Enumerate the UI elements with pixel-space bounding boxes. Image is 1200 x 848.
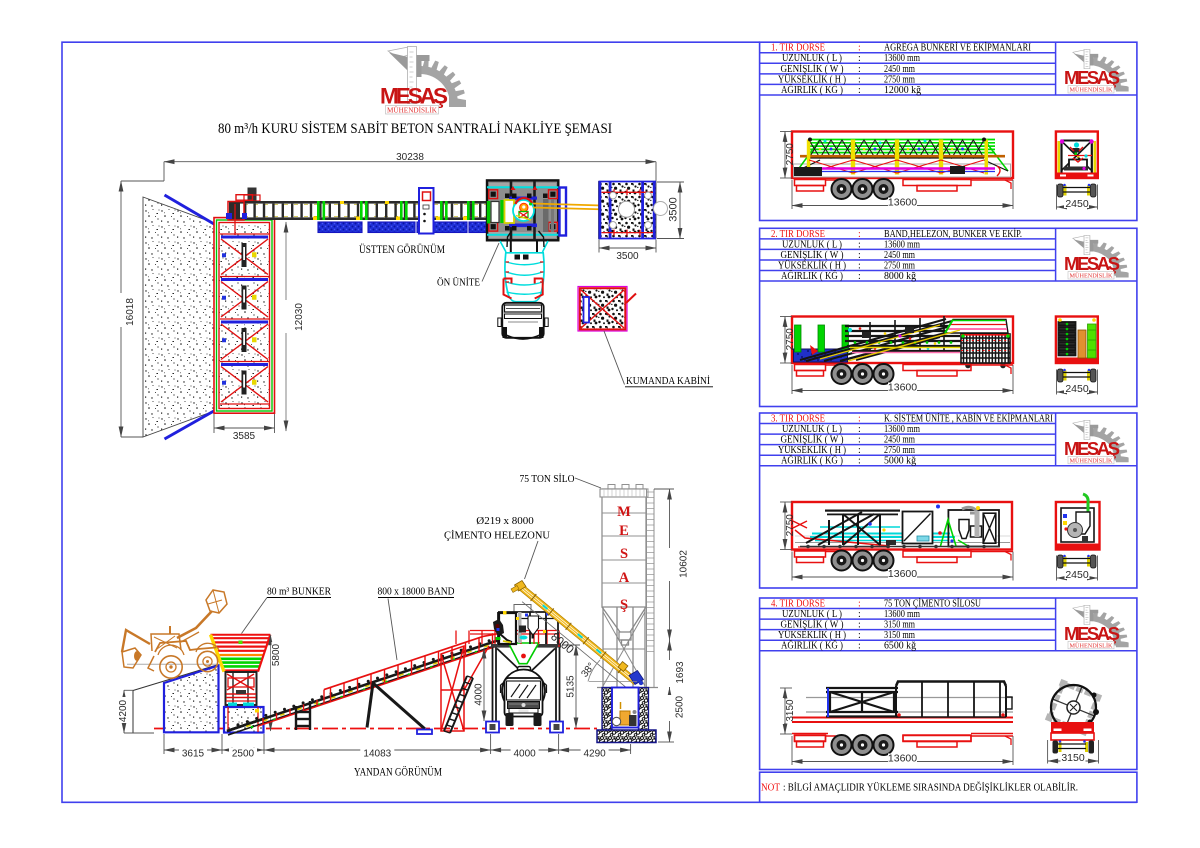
- svg-text:4. TIR DORSE: 4. TIR DORSE: [771, 599, 825, 610]
- svg-text:30238: 30238: [396, 152, 424, 163]
- svg-text:GENİŞLİK ( W ): GENİŞLİK ( W ): [781, 619, 844, 631]
- svg-text:UZUNLUK ( L ): UZUNLUK ( L ): [782, 239, 842, 250]
- svg-text:5000 kğ: 5000 kğ: [884, 456, 916, 467]
- svg-text:MESAŞ: MESAŞ: [380, 84, 448, 109]
- svg-text:3500: 3500: [668, 197, 680, 221]
- svg-text:YÜKSEKLİK ( H ): YÜKSEKLİK ( H ): [778, 259, 846, 271]
- svg-text:2. TIR DORSE: 2. TIR DORSE: [771, 229, 825, 240]
- svg-text:2750 mm: 2750 mm: [884, 260, 915, 271]
- svg-text:3. TIR DORSE: 3. TIR DORSE: [771, 414, 825, 425]
- svg-text::: :: [858, 43, 861, 54]
- svg-text:3615: 3615: [182, 749, 205, 760]
- svg-text:ÖN ÜNİTE: ÖN ÜNİTE: [437, 277, 480, 289]
- svg-text:12000 kğ: 12000 kğ: [884, 85, 921, 96]
- svg-text:UZUNLUK ( L ): UZUNLUK ( L ): [782, 53, 842, 64]
- svg-text:75 TON SİLO: 75 TON SİLO: [520, 473, 575, 485]
- svg-text:ÜSTTEN GÖRÜNÜM: ÜSTTEN GÖRÜNÜM: [359, 242, 445, 256]
- svg-text:2750 mm: 2750 mm: [884, 445, 915, 456]
- svg-text:5800: 5800: [271, 643, 282, 666]
- svg-text:MÜHENDİSLİK: MÜHENDİSLİK: [387, 105, 438, 114]
- svg-text:AGREGA BUNKERİ VE EKİPMANLARI: AGREGA BUNKERİ VE EKİPMANLARI: [884, 42, 1031, 54]
- svg-text:GENİŞLİK ( W ): GENİŞLİK ( W ): [781, 249, 844, 261]
- svg-text::: :: [858, 250, 861, 261]
- svg-text::: :: [858, 445, 861, 456]
- svg-text:8000 kğ: 8000 kğ: [884, 271, 916, 282]
- svg-text:3500: 3500: [616, 251, 639, 262]
- svg-text::: :: [858, 599, 861, 610]
- svg-text:2450: 2450: [1065, 569, 1089, 581]
- svg-text:10602: 10602: [679, 550, 690, 578]
- svg-text:AĞIRLIK ( KĞ ): AĞIRLIK ( KĞ ): [781, 640, 843, 652]
- svg-text:14083: 14083: [363, 749, 391, 760]
- svg-text:4000: 4000: [474, 683, 485, 706]
- svg-text:M: M: [617, 504, 631, 520]
- svg-text::: :: [858, 64, 861, 75]
- svg-text:3150: 3150: [1061, 752, 1085, 764]
- svg-text:2500: 2500: [232, 749, 255, 760]
- svg-text:: BİLGİ AMAÇLIDIR YÜKLEME SIRA: : BİLGİ AMAÇLIDIR YÜKLEME SIRASINDA DEĞİ…: [783, 782, 1078, 794]
- svg-text:A: A: [619, 570, 630, 586]
- svg-text:2750 mm: 2750 mm: [884, 74, 915, 85]
- svg-text:4290: 4290: [583, 749, 606, 760]
- svg-text:AĞIRLIK ( KĞ ): AĞIRLIK ( KĞ ): [781, 455, 843, 467]
- svg-text:Ø219 x 8000: Ø219 x 8000: [476, 515, 534, 527]
- svg-text:E: E: [619, 523, 629, 539]
- svg-text:GENİŞLİK ( W ): GENİŞLİK ( W ): [781, 434, 844, 446]
- svg-text:2450 mm: 2450 mm: [884, 250, 915, 261]
- svg-text::: :: [858, 53, 861, 64]
- svg-text:ÇİMENTO HELEZONU: ÇİMENTO HELEZONU: [444, 530, 550, 542]
- svg-text:13600: 13600: [888, 382, 917, 394]
- svg-text:UZUNLUK ( L ): UZUNLUK ( L ): [782, 424, 842, 435]
- svg-text::: :: [858, 424, 861, 435]
- svg-text:2450 mm: 2450 mm: [884, 64, 915, 75]
- svg-text::: :: [858, 620, 861, 631]
- svg-text:YANDAN GÖRÜNÜM: YANDAN GÖRÜNÜM: [354, 765, 442, 779]
- svg-text:4200: 4200: [118, 699, 129, 722]
- svg-text:1693: 1693: [675, 661, 686, 684]
- svg-text:UZUNLUK ( L ): UZUNLUK ( L ): [782, 609, 842, 620]
- svg-text:GENİŞLİK ( W ): GENİŞLİK ( W ): [781, 63, 844, 75]
- svg-text:13600 mm: 13600 mm: [884, 609, 920, 620]
- svg-text::: :: [858, 609, 861, 620]
- svg-text:1. TIR DORSE: 1. TIR DORSE: [771, 43, 825, 54]
- svg-text:YÜKSEKLİK ( H ): YÜKSEKLİK ( H ): [778, 629, 846, 641]
- svg-text::: :: [858, 260, 861, 271]
- svg-text::: :: [858, 239, 861, 250]
- svg-text:S: S: [620, 546, 628, 562]
- svg-text::: :: [858, 641, 861, 652]
- svg-text:3585: 3585: [233, 431, 256, 442]
- svg-text:800 x 18000 BAND: 800 x 18000 BAND: [378, 586, 455, 598]
- svg-text:2450: 2450: [1065, 383, 1089, 395]
- svg-text:YÜKSEKLİK ( H ): YÜKSEKLİK ( H ): [778, 73, 846, 85]
- svg-text:75 TON ÇİMENTO SİLOSU: 75 TON ÇİMENTO SİLOSU: [884, 598, 982, 610]
- svg-text:NOT: NOT: [761, 782, 780, 794]
- svg-text:KUMANDA KABİNİ: KUMANDA KABİNİ: [626, 375, 710, 387]
- svg-text:5135: 5135: [566, 675, 577, 698]
- svg-text:3150 mm: 3150 mm: [884, 630, 915, 641]
- svg-text:4000: 4000: [513, 749, 536, 760]
- svg-text:AĞIRLIK ( KĞ ): AĞIRLIK ( KĞ ): [781, 270, 843, 282]
- svg-text::: :: [858, 435, 861, 446]
- svg-text:2750: 2750: [785, 328, 796, 351]
- svg-text:13600 mm: 13600 mm: [884, 239, 920, 250]
- svg-text::: :: [858, 456, 861, 467]
- svg-text::: :: [858, 85, 861, 96]
- svg-text:Ş: Ş: [620, 597, 628, 613]
- svg-text:13600 mm: 13600 mm: [884, 53, 920, 64]
- svg-text:YÜKSEKLİK ( H ): YÜKSEKLİK ( H ): [778, 444, 846, 456]
- svg-text:13600: 13600: [888, 568, 917, 580]
- svg-text:2450 mm: 2450 mm: [884, 435, 915, 446]
- svg-text:2750: 2750: [785, 514, 796, 537]
- svg-text:AĞIRLIK ( KĞ ): AĞIRLIK ( KĞ ): [781, 84, 843, 96]
- svg-text:12030: 12030: [294, 303, 305, 331]
- svg-text:16018: 16018: [125, 298, 136, 326]
- svg-text:13600: 13600: [888, 753, 917, 765]
- svg-text:2450: 2450: [1065, 198, 1089, 210]
- svg-text:3150: 3150: [785, 699, 796, 722]
- svg-text::: :: [858, 414, 861, 425]
- svg-text::: :: [858, 630, 861, 641]
- svg-text:13600: 13600: [888, 197, 917, 209]
- svg-text:3150 mm: 3150 mm: [884, 620, 915, 631]
- svg-text:80 m³ BUNKER: 80 m³ BUNKER: [267, 586, 332, 598]
- svg-text::: :: [858, 229, 861, 240]
- svg-text:80 m³/h KURU SİSTEM SABİT BETO: 80 m³/h KURU SİSTEM SABİT BETON SANTRALİ…: [218, 121, 612, 137]
- svg-text:6500 kğ: 6500 kğ: [884, 641, 916, 652]
- svg-text::: :: [858, 271, 861, 282]
- svg-text:2750: 2750: [785, 143, 796, 166]
- svg-text::: :: [858, 74, 861, 85]
- svg-text:2500: 2500: [675, 695, 686, 718]
- svg-text:BAND,HELEZON, BUNKER VE EKİP.: BAND,HELEZON, BUNKER VE EKİP.: [884, 228, 1022, 240]
- svg-text:13600 mm: 13600 mm: [884, 424, 920, 435]
- svg-text:K. SİSTEM ÜNİTE , KABİN VE EKİ: K. SİSTEM ÜNİTE , KABİN VE EKİPMANLARI: [884, 413, 1053, 425]
